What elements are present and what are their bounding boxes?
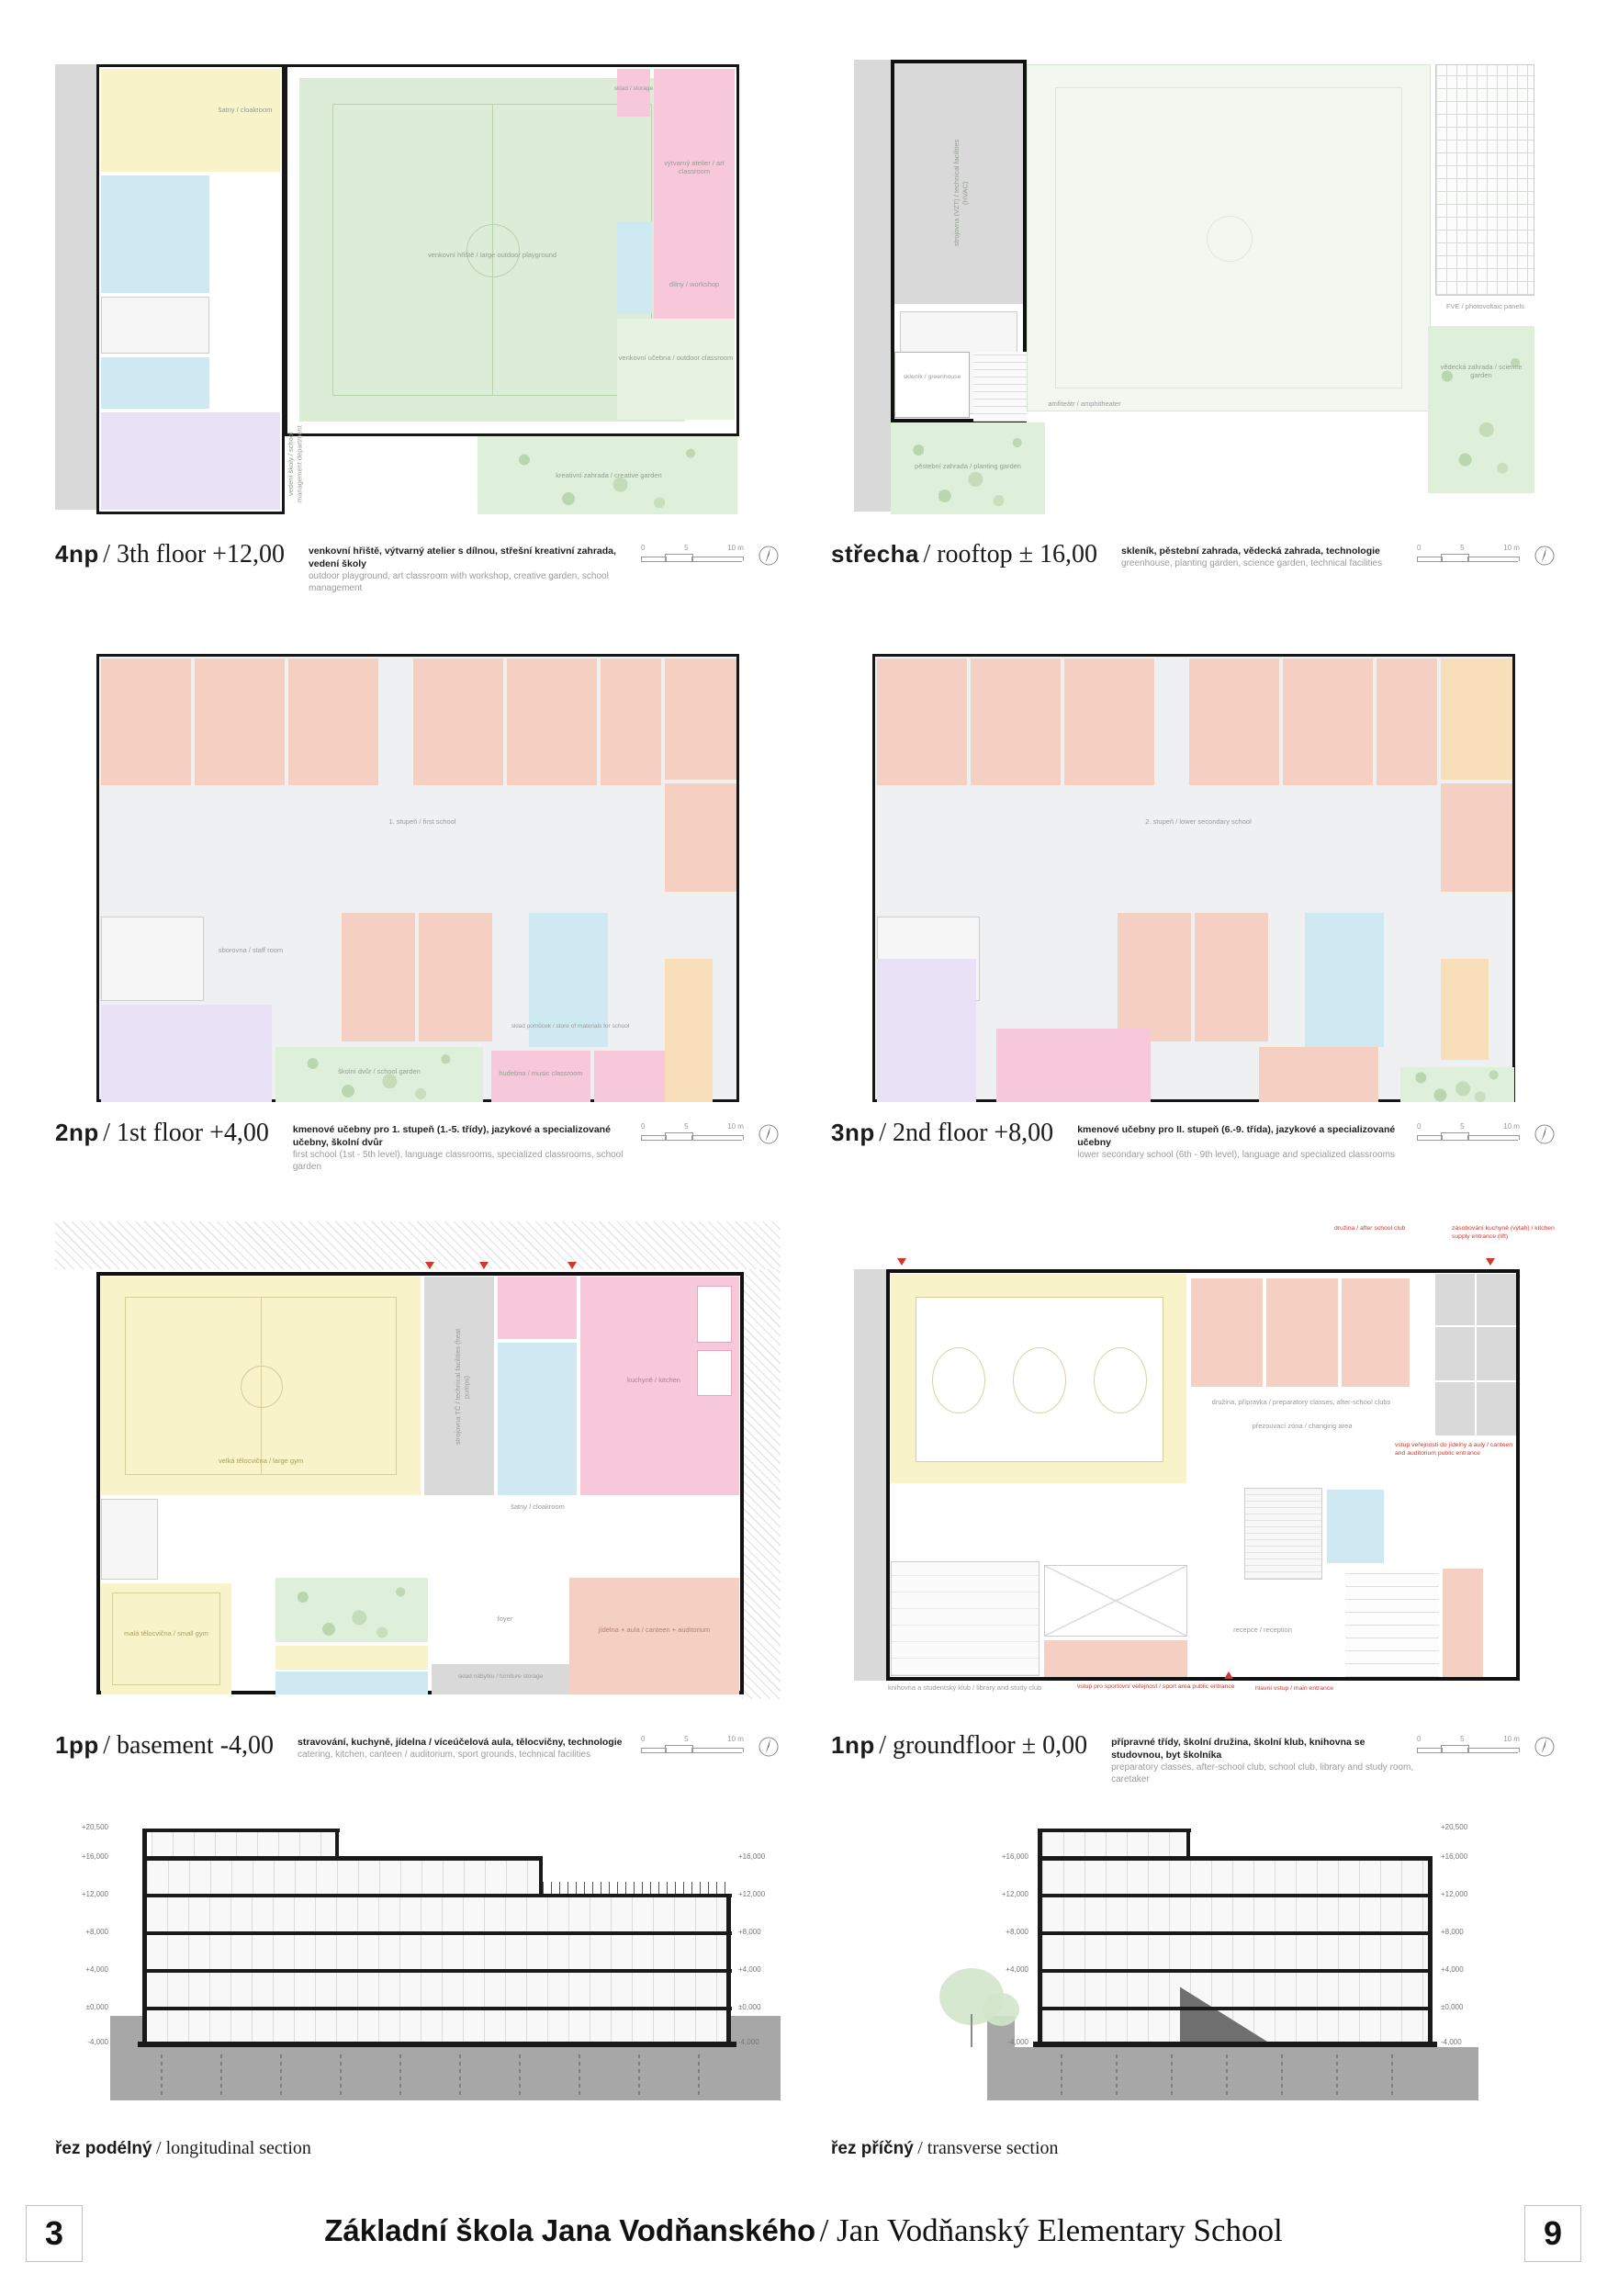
zone-planting xyxy=(275,1578,428,1642)
roof-railing xyxy=(543,1882,726,1894)
room-label: pěstební zahrada / planting garden xyxy=(895,462,1040,470)
level-label: ±0,000 xyxy=(1441,2003,1487,2011)
floor-title: / 1st floor +4,00 xyxy=(103,1119,269,1147)
page-number-right: 9 xyxy=(1524,2205,1581,2262)
level-label: +4,000 xyxy=(983,1965,1028,1974)
level-label: ±0,000 xyxy=(738,2003,781,2011)
north-arrow-icon xyxy=(1533,1122,1556,1146)
level-label: -4,000 xyxy=(983,2038,1028,2046)
slab xyxy=(1038,1969,1433,1973)
zone-classroom xyxy=(342,913,415,1041)
room-label: sklad / storage xyxy=(612,85,656,93)
stair-main xyxy=(1244,1488,1322,1580)
red-annotation: družina / after school club xyxy=(1334,1225,1443,1233)
caption-title: 1pp / basement -4,00 xyxy=(55,1731,274,1761)
zone-sanitary xyxy=(1305,913,1384,1047)
level-label: +8,000 xyxy=(983,1928,1028,1936)
scale-bar: 0510 m xyxy=(1417,1735,1520,1753)
scale-5: 5 xyxy=(1460,1735,1464,1743)
level-label: -4,000 xyxy=(738,2038,781,2046)
level-label: +4,000 xyxy=(62,1965,108,1974)
zone-club-classroom xyxy=(1191,1278,1263,1387)
floor xyxy=(146,1973,726,2007)
entrance-marker-icon xyxy=(425,1262,434,1269)
neighbour-strip xyxy=(854,1269,886,1681)
level-label: +4,000 xyxy=(1441,1965,1487,1974)
zone-photovoltaics xyxy=(1435,64,1534,296)
entrance-marker-icon xyxy=(897,1258,906,1266)
level-label: -4,000 xyxy=(62,2038,108,2046)
level-label: +20,500 xyxy=(1441,1823,1487,1831)
north-arrow-icon xyxy=(757,1735,781,1759)
room-label: 2. stupeň / lower secondary school xyxy=(1079,817,1318,826)
pile xyxy=(519,2051,521,2095)
level-label: +8,000 xyxy=(62,1928,108,1936)
zone-changing-rooms xyxy=(498,1343,577,1495)
section-label-cs: řez příčný xyxy=(831,2139,914,2158)
zone-courtyard xyxy=(1044,1565,1187,1637)
zone-classroom xyxy=(288,658,378,785)
room-label: vědecká zahrada / science garden xyxy=(1430,363,1533,380)
floor-title: / 3th floor +12,00 xyxy=(103,540,285,568)
tree xyxy=(983,1993,1019,2026)
floor-code: 2np xyxy=(55,1119,99,1146)
floor-code: 4np xyxy=(55,540,99,568)
zone-club-classroom xyxy=(1266,1278,1338,1387)
caption-desc-cs: venkovní hřiště, výtvarný atelier s díln… xyxy=(309,545,641,570)
caption-2np: 2np / 1st floor +4,00 kmenové učebny pro… xyxy=(55,1119,781,1173)
slab xyxy=(142,1856,543,1861)
pile xyxy=(1061,2051,1062,2095)
zone-sanitary xyxy=(101,357,209,409)
zone-lockers xyxy=(275,1671,428,1694)
scale-0: 0 xyxy=(641,1122,645,1131)
zone-classroom xyxy=(1259,1047,1378,1102)
plan-1pp: velká tělocvična / large gym malá tělocv… xyxy=(55,1221,781,1699)
pile xyxy=(1336,2051,1338,2095)
caption-desc-cs: kmenové učebny pro II. stupeň (6.-9. tří… xyxy=(1077,1123,1417,1149)
level-label: +16,000 xyxy=(62,1852,108,1861)
north-arrow-icon xyxy=(757,544,781,568)
room-label: amfiteátr / amphitheater xyxy=(1029,400,1140,408)
slab xyxy=(1038,1894,1433,1897)
zone-classroom xyxy=(601,658,661,785)
pile xyxy=(698,2051,700,2095)
room-label: venkovní učebna / outdoor classroom xyxy=(612,354,740,362)
level-label: +4,000 xyxy=(738,1965,781,1974)
caption-title: střecha / rooftop ± 16,00 xyxy=(831,540,1097,569)
caption-desc-en: first school (1st - 5th level), language… xyxy=(293,1149,641,1173)
zone-classroom xyxy=(971,658,1061,785)
section-caption-longitudinal: řez podélný / longitudinal section xyxy=(55,2138,311,2159)
zone-specialized-classroom xyxy=(1441,658,1512,780)
neighbour-strip xyxy=(55,64,96,510)
zone-art-classroom xyxy=(654,69,735,333)
floor-title: / 2nd floor +8,00 xyxy=(879,1119,1053,1147)
caption-title: 2np / 1st floor +4,00 xyxy=(55,1119,269,1148)
zone-language-classroom xyxy=(665,959,713,1102)
zone-small-gym xyxy=(101,1583,231,1694)
scale-5: 5 xyxy=(1460,544,1464,552)
floor xyxy=(146,2010,726,2042)
scale-0: 0 xyxy=(641,1735,645,1743)
scale-bar: 0510 m xyxy=(641,1122,744,1141)
zone-library xyxy=(1044,1640,1187,1677)
pile xyxy=(579,2051,580,2095)
room-label: dílny / workshop xyxy=(654,280,735,288)
scale-5: 5 xyxy=(684,1735,688,1743)
floor-code: 3np xyxy=(831,1119,875,1146)
room-label: hudebna / music classroom xyxy=(491,1069,590,1077)
room-label: foyer xyxy=(468,1615,542,1623)
zone-classroom xyxy=(665,783,736,892)
entrance-marker-icon xyxy=(568,1262,577,1269)
plan-rooftop: FVE / photovoltaic panels vědecká zahrad… xyxy=(831,51,1556,514)
scale-0: 0 xyxy=(641,544,645,552)
room-label: venkovní hřiště / large outdoor playgrou… xyxy=(299,251,685,259)
caption-desc-en: outdoor playground, art classroom with w… xyxy=(309,570,641,594)
wall xyxy=(726,1894,731,2045)
zone-rooms-yellow xyxy=(101,69,280,172)
caption-rooftop: střecha / rooftop ± 16,00 skleník, pěste… xyxy=(831,540,1556,569)
level-label: +8,000 xyxy=(1441,1928,1487,1936)
zone-classroom xyxy=(101,658,191,785)
room-label: strojovna (VZT) / technical facilities (… xyxy=(952,133,963,253)
tree-trunk xyxy=(971,2014,972,2047)
floor xyxy=(1042,1897,1428,1931)
room-label: kreativní zahrada / creative garden xyxy=(494,471,724,479)
north-arrow-icon xyxy=(1533,544,1556,568)
caption-desc-cs: stravování, kuchyně, jídelna / víceúčelo… xyxy=(298,1736,641,1749)
zone-sanitary xyxy=(101,175,209,293)
zone-study-room xyxy=(891,1561,1039,1676)
caption-title: 4np / 3th floor +12,00 xyxy=(55,540,285,569)
level-label: -4,000 xyxy=(1441,2038,1487,2046)
neighbour-strip xyxy=(854,60,891,512)
room-label: velká tělocvična / large gym xyxy=(101,1457,421,1465)
section-longitudinal: +20,500 +16,000 +12,000 +8,000 +4,000 ±0… xyxy=(55,1805,781,2126)
slab xyxy=(142,2007,732,2010)
pile xyxy=(1281,2051,1283,2095)
pile xyxy=(1226,2051,1228,2095)
wall xyxy=(1186,1829,1190,1860)
room-label: výtvarný atelier / art classroom xyxy=(654,159,735,176)
zone-specialized-classroom xyxy=(996,1029,1151,1102)
level-label: ±0,000 xyxy=(62,2003,108,2011)
scale-0: 0 xyxy=(1417,1735,1421,1743)
zone-classroom xyxy=(413,658,503,785)
wall xyxy=(142,1829,147,2045)
level-label: +16,000 xyxy=(983,1852,1028,1861)
slab xyxy=(1033,2042,1437,2047)
presentation-sheet: venkovní hřiště / large outdoor playgrou… xyxy=(0,0,1607,2296)
zone-canteen-auditorium xyxy=(569,1578,739,1694)
level-label: +12,000 xyxy=(983,1890,1028,1898)
pile xyxy=(340,2051,342,2095)
scale-5: 5 xyxy=(684,544,688,552)
red-annotation: vstup pro sportovní veřejnost / sport ar… xyxy=(1077,1683,1242,1692)
zone-outdoor-classroom xyxy=(617,319,735,420)
north-arrow-icon xyxy=(1533,1735,1556,1759)
sheet-title-cs: Základní škola Jana Vodňanského xyxy=(324,2213,815,2247)
slab xyxy=(138,2042,736,2047)
slab xyxy=(1038,1931,1433,1935)
scale-10: 10 m xyxy=(727,544,744,552)
caption-4np: 4np / 3th floor +12,00 venkovní hřiště, … xyxy=(55,540,781,594)
red-annotation: hlavní vstup / main entrance xyxy=(1255,1685,1402,1694)
room-label: šatny / cloakroom xyxy=(494,1503,581,1511)
entrance-marker-icon xyxy=(479,1262,489,1269)
zone-sanitary xyxy=(1327,1490,1384,1563)
wall xyxy=(335,1829,339,1860)
caption-desc-en: lower secondary school (6th - 9th level)… xyxy=(1077,1149,1417,1161)
red-annotation: zásobování kuchyně (výtah) / kitchen sup… xyxy=(1452,1225,1555,1242)
zone-field-below xyxy=(1027,64,1431,411)
level-label: +12,000 xyxy=(62,1890,108,1898)
entrance-marker-icon xyxy=(1224,1671,1233,1679)
plan-2np: 1. stupeň / first school školní dvůr / s… xyxy=(55,643,781,1102)
floor xyxy=(152,1832,333,1856)
zone-canteen-gallery xyxy=(1443,1569,1483,1677)
zone-lockers xyxy=(275,1646,428,1670)
zone-school-management xyxy=(101,412,280,510)
zone-amphitheater xyxy=(973,352,1027,422)
scale-10: 10 m xyxy=(1503,1122,1520,1131)
room-label: sklad pomůcek / store of materials for s… xyxy=(511,1023,630,1030)
pile xyxy=(1116,2051,1118,2095)
zone-garden-strip xyxy=(1400,1067,1514,1102)
pile xyxy=(1171,2051,1173,2095)
level-label: +16,000 xyxy=(1441,1852,1487,1861)
caption-1np: 1np / groundfloor ± 0,00 přípravné třídy… xyxy=(831,1731,1556,1785)
zone-sanitary xyxy=(617,221,652,313)
level-label: +20,500 xyxy=(62,1823,108,1831)
floor xyxy=(146,1935,726,1969)
scale-5: 5 xyxy=(684,1122,688,1131)
zone-classroom xyxy=(1195,913,1268,1041)
section-label-cs: řez podélný xyxy=(55,2139,152,2158)
zone-day-gym xyxy=(498,1277,577,1339)
caption-desc-cs: skleník, pěstební zahrada, vědecká zahra… xyxy=(1121,545,1417,557)
slab xyxy=(147,1829,340,1832)
room-label: skleník / greenhouse xyxy=(894,374,970,381)
zone-classroom xyxy=(877,658,967,785)
slab xyxy=(142,1894,732,1897)
stair-core xyxy=(101,917,204,1001)
floor xyxy=(1042,1861,1428,1894)
room-label: kuchyně / kitchen xyxy=(580,1376,727,1384)
room-label: recepce / reception xyxy=(1217,1626,1309,1634)
section-label-en: / longitudinal section xyxy=(156,2138,311,2158)
floor-title: / basement -4,00 xyxy=(103,1731,274,1760)
sheet-title-en: / Jan Vodňanský Elementary School xyxy=(820,2212,1283,2248)
zone-greenhouse xyxy=(894,352,970,418)
zone-specialized-classroom xyxy=(1441,959,1489,1060)
room-label: malá tělocvična / small gym xyxy=(101,1629,231,1638)
floor-code: 1np xyxy=(831,1731,875,1759)
section-label-en: / transverse section xyxy=(917,2138,1058,2158)
floor xyxy=(1042,1832,1185,1856)
zone-canteen-tables xyxy=(1345,1569,1439,1677)
wall xyxy=(1428,1856,1433,2045)
level-label: +12,000 xyxy=(1441,1890,1487,1898)
slab xyxy=(142,1969,732,1973)
red-annotation: vstup veřejnosti do jídelny a auly / can… xyxy=(1395,1442,1514,1458)
zone-staff xyxy=(877,959,976,1102)
caption-title: 3np / 2nd floor +8,00 xyxy=(831,1119,1053,1148)
zone-classroom xyxy=(195,658,285,785)
scale-bar: 0510 m xyxy=(641,1735,744,1753)
plan-3np: 2. stupeň / lower secondary school xyxy=(831,643,1556,1102)
floor xyxy=(1042,1935,1428,1969)
floor-code: střecha xyxy=(831,540,919,568)
scale-bar: 0510 m xyxy=(1417,1122,1520,1141)
room-label: vedení školy / school management departm… xyxy=(287,418,298,510)
pile xyxy=(399,2051,401,2095)
scale-bar: 0510 m xyxy=(641,544,744,562)
section-caption-transverse: řez příčný / transverse section xyxy=(831,2138,1059,2159)
room-label: jídelna + aula / canteen + auditorium xyxy=(569,1626,739,1634)
pile xyxy=(280,2051,282,2095)
caption-title: 1np / groundfloor ± 0,00 xyxy=(831,1731,1087,1761)
zone-classroom xyxy=(1064,658,1154,785)
pile xyxy=(161,2051,163,2095)
caption-desc-en: preparatory classes, after-school club, … xyxy=(1111,1761,1417,1785)
floor-code: 1pp xyxy=(55,1731,99,1759)
level-label: +8,000 xyxy=(738,1928,781,1936)
scale-0: 0 xyxy=(1417,1122,1421,1131)
zone-classroom xyxy=(1441,783,1512,892)
pile xyxy=(638,2051,640,2095)
scale-0: 0 xyxy=(1417,544,1421,552)
zone-club-classroom xyxy=(1342,1278,1410,1387)
caption-desc-cs: přípravné třídy, školní družina, školní … xyxy=(1111,1736,1417,1761)
pile xyxy=(459,2051,461,2095)
caption-1pp: 1pp / basement -4,00 stravování, kuchyně… xyxy=(55,1731,781,1761)
scale-10: 10 m xyxy=(1503,1735,1520,1743)
zone-classroom xyxy=(1377,658,1437,785)
zone-classroom xyxy=(665,658,736,780)
site-hatch xyxy=(742,1269,781,1699)
footer: 3 Základní škola Jana Vodňanského / Jan … xyxy=(0,2200,1607,2273)
zone-classroom xyxy=(419,913,492,1041)
scale-10: 10 m xyxy=(1503,544,1520,552)
caption-desc-en: greenhouse, planting garden, science gar… xyxy=(1121,557,1417,569)
pile xyxy=(220,2051,222,2095)
zone-classroom xyxy=(1283,658,1373,785)
caption-desc-en: catering, kitchen, canteen / auditorium,… xyxy=(298,1749,641,1761)
north-arrow-icon xyxy=(757,1122,781,1146)
floor xyxy=(1042,1973,1428,2007)
room-label: přezouvací zóna / changing area xyxy=(1224,1422,1380,1430)
plan-1np: družina / after school club zásobování k… xyxy=(831,1221,1556,1699)
entrance-marker-icon xyxy=(1486,1258,1495,1266)
zone-gym-void xyxy=(891,1274,1186,1483)
room-label: knihovna a studentský klub / library and… xyxy=(888,1683,1072,1692)
sheet-title: Základní škola Jana Vodňanského / Jan Vo… xyxy=(0,2212,1607,2249)
slab xyxy=(1038,2007,1433,2010)
stair-core xyxy=(101,297,209,354)
level-label: +16,000 xyxy=(738,1852,781,1861)
wall xyxy=(539,1856,543,1897)
zone-staff xyxy=(101,1005,272,1102)
room-label: sborovna / staff room xyxy=(208,946,294,954)
floor-title: / rooftop ± 16,00 xyxy=(923,540,1097,568)
plan-4np: venkovní hřiště / large outdoor playgrou… xyxy=(55,51,781,514)
scale-10: 10 m xyxy=(727,1735,744,1743)
room-label: šatny / cloakroom xyxy=(209,106,281,114)
room-label: FVE / photovoltaic panels xyxy=(1423,302,1547,310)
pile xyxy=(1391,2051,1393,2095)
ground-soil xyxy=(110,2047,779,2100)
zone-classroom xyxy=(1118,913,1191,1041)
zone-kitchen xyxy=(580,1277,739,1495)
section-transverse: +16,000 +12,000 +8,000 +4,000 -4,000 +20… xyxy=(831,1805,1556,2126)
floor-title: / groundfloor ± 0,00 xyxy=(879,1731,1087,1760)
scale-bar: 0510 m xyxy=(1417,544,1520,562)
room-label: sklad nábytku / furniture storage xyxy=(433,1673,568,1681)
slab xyxy=(142,1931,732,1935)
room-label: strojovna TČ / technical facilities (hea… xyxy=(454,1322,465,1451)
zone-science-garden xyxy=(1428,326,1534,493)
room-label: 1. stupeň / first school xyxy=(321,817,523,826)
wall xyxy=(1038,1829,1042,2045)
scale-10: 10 m xyxy=(727,1122,744,1131)
slab xyxy=(1038,1856,1433,1861)
zone-caretaker-flat xyxy=(1433,1274,1516,1437)
zone-classroom xyxy=(1189,658,1279,785)
floor xyxy=(147,1861,539,1894)
caption-desc-cs: kmenové učebny pro 1. stupeň (1.-5. tříd… xyxy=(293,1123,641,1149)
room-label: školní dvůr / school garden xyxy=(301,1067,457,1075)
floor xyxy=(146,1897,726,1931)
room-label: družina, přípravka / preparatory classes… xyxy=(1191,1398,1411,1406)
caption-3np: 3np / 2nd floor +8,00 kmenové učebny pro… xyxy=(831,1119,1556,1161)
slab xyxy=(1042,1829,1191,1832)
site-hatch xyxy=(55,1221,781,1269)
stair-core xyxy=(101,1499,158,1580)
level-label: +12,000 xyxy=(738,1890,781,1898)
zone-classroom xyxy=(507,658,597,785)
scale-5: 5 xyxy=(1460,1122,1464,1131)
